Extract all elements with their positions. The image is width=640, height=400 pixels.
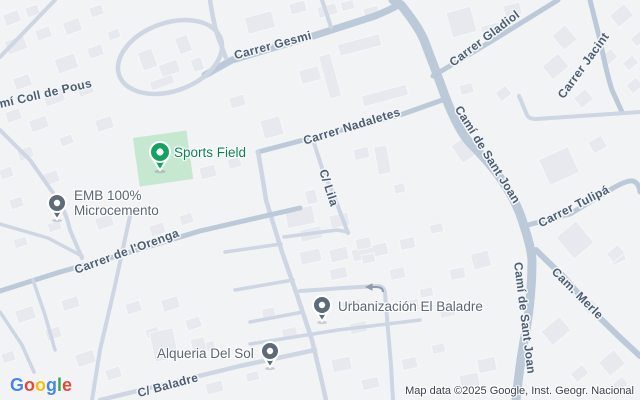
building	[570, 364, 589, 382]
poi-label-emb-line2: Microcemento	[74, 203, 159, 218]
building	[289, 0, 307, 15]
poi-label-sports-field[interactable]: Sports Field	[174, 145, 246, 160]
building	[137, 48, 158, 71]
building	[599, 350, 626, 377]
building	[556, 221, 594, 259]
building	[626, 77, 640, 94]
road-alqueria-street	[250, 320, 420, 344]
building	[574, 89, 594, 109]
map-attribution: Map data ©2025 Google, Inst. Geogr. Naci…	[405, 385, 634, 397]
building	[89, 4, 105, 18]
building	[9, 196, 25, 210]
road-comb-3	[235, 280, 293, 290]
building	[541, 316, 571, 345]
building	[353, 146, 370, 160]
marker-pin-hole	[54, 200, 60, 206]
building	[299, 66, 322, 85]
logo-letter: g	[46, 375, 57, 395]
road-label-c-lila: C/ Lila	[316, 167, 341, 208]
road-comb-2	[225, 244, 281, 252]
building	[588, 135, 607, 154]
building	[459, 82, 474, 95]
logo-letter: G	[10, 375, 24, 395]
building	[374, 145, 392, 175]
building	[495, 85, 512, 102]
road-label-carrer-nadaletes: Carrer Nadaletes	[301, 105, 402, 148]
building	[419, 287, 434, 299]
building	[12, 73, 32, 90]
building	[340, 0, 355, 12]
google-logo[interactable]: Google	[10, 375, 72, 396]
road-label-c-baladre: C/ Baladre	[136, 370, 200, 400]
building	[5, 108, 23, 123]
poi-label-emb[interactable]: EMB 100% Microcemento	[74, 188, 159, 218]
building	[245, 370, 260, 382]
building	[125, 300, 143, 315]
urbanizacion-marker[interactable]	[313, 296, 331, 324]
building	[105, 366, 123, 381]
building	[244, 11, 275, 35]
marker-pin-hole	[267, 348, 273, 354]
building	[62, 17, 82, 35]
building	[47, 220, 62, 233]
logo-letter: e	[62, 375, 72, 395]
road-label-carrer-gesmi: Carrer Gesmi	[233, 28, 314, 62]
building	[28, 115, 49, 132]
building	[14, 305, 36, 323]
building	[331, 356, 352, 373]
road-left-stub	[33, 280, 55, 350]
building	[35, 26, 53, 41]
building	[630, 31, 640, 46]
building	[622, 55, 638, 71]
building	[393, 183, 406, 194]
building	[185, 316, 203, 331]
building	[13, 236, 28, 249]
building	[54, 53, 79, 74]
emb-marker[interactable]	[48, 194, 66, 222]
building	[389, 267, 406, 281]
marker-pin-hole	[319, 302, 325, 308]
building	[361, 84, 408, 107]
building	[174, 34, 192, 54]
building	[429, 223, 444, 235]
building	[401, 357, 418, 371]
building	[190, 57, 205, 73]
building	[2, 10, 21, 27]
building	[361, 376, 380, 390]
poi-label-emb-line1: EMB 100%	[74, 188, 159, 203]
road-label-cam-merle: Cam. Merle	[549, 265, 606, 322]
building	[199, 164, 218, 180]
building	[305, 189, 319, 205]
alqueria-marker[interactable]	[261, 342, 279, 370]
building	[446, 6, 477, 38]
building	[87, 44, 105, 59]
map-canvas[interactable]: Carrer Gesmi Camí Coll de Pous Carrer Na…	[0, 0, 640, 400]
building	[542, 53, 569, 80]
logo-letter: o	[35, 375, 46, 395]
building	[59, 134, 74, 147]
building	[477, 356, 498, 373]
marker-pin-hole	[156, 148, 163, 155]
building	[0, 166, 14, 180]
building	[609, 4, 633, 28]
building	[1, 350, 16, 364]
building	[95, 116, 115, 133]
building	[449, 267, 466, 281]
building	[299, 248, 322, 265]
building	[229, 94, 246, 109]
building	[470, 250, 492, 270]
building	[319, 53, 342, 99]
building	[552, 25, 577, 50]
building	[161, 296, 181, 313]
logo-letter: o	[24, 375, 35, 395]
building	[205, 380, 224, 395]
poi-label-urbanizacion[interactable]: Urbanización El Baladre	[338, 299, 483, 314]
building	[539, 147, 580, 186]
building	[329, 246, 349, 263]
building	[74, 349, 96, 367]
road-comb-4	[250, 312, 303, 322]
building	[329, 266, 348, 280]
building	[61, 296, 81, 312]
road-emb-diagonal	[0, 130, 82, 258]
building	[337, 34, 382, 57]
building	[179, 212, 194, 226]
building	[107, 28, 121, 41]
building	[260, 116, 284, 140]
poi-label-alqueria[interactable]: Alqueria Del Sol	[157, 346, 254, 361]
building	[431, 343, 446, 355]
building	[399, 237, 416, 251]
